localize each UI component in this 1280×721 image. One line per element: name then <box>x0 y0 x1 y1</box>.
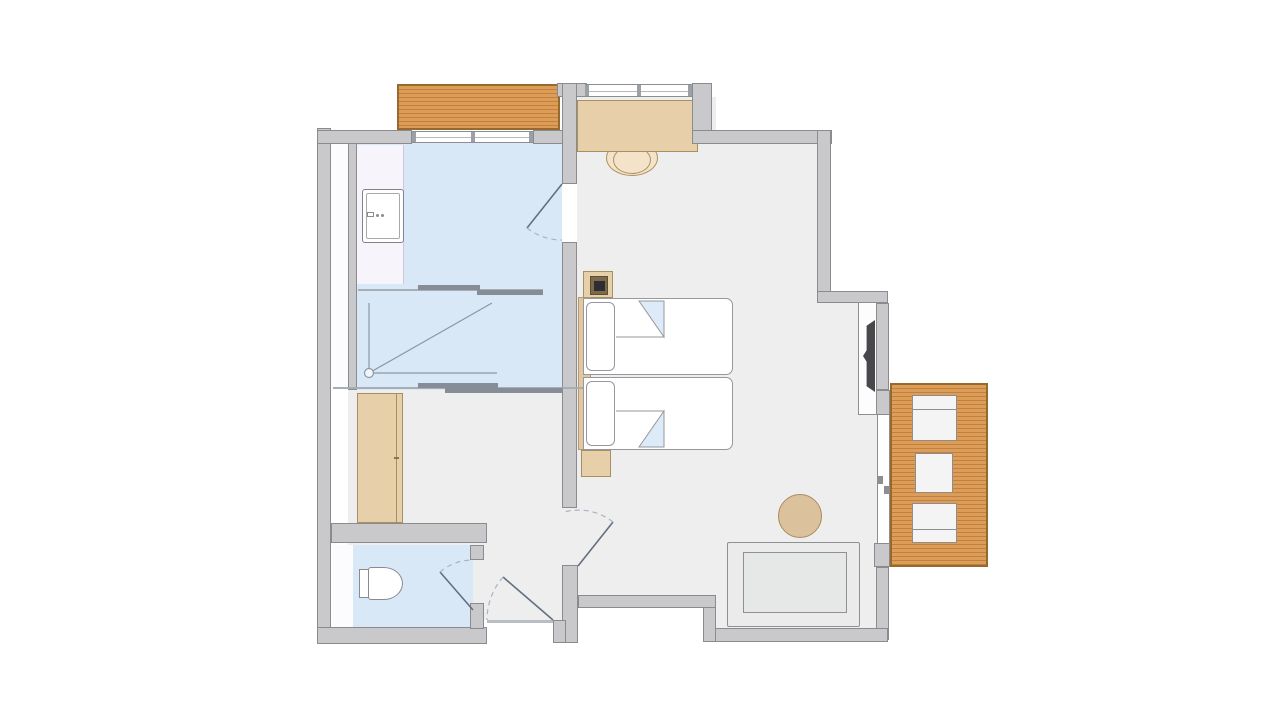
wc-floor <box>333 545 473 627</box>
entry-threshold <box>487 620 553 623</box>
wall <box>331 523 487 543</box>
sliding-partition-upper-panel <box>477 290 543 295</box>
wall <box>876 303 889 390</box>
chair-backrest-line <box>913 409 956 410</box>
juliet-deck <box>397 84 560 130</box>
wall <box>703 628 888 642</box>
wall-cavity <box>333 545 353 627</box>
wall-cavity <box>331 143 348 390</box>
bedroom-window <box>585 84 692 97</box>
faucet-icon <box>381 214 384 217</box>
sliding-partition-upper-panel <box>418 285 480 290</box>
wall <box>317 627 487 644</box>
slider-handle <box>884 486 889 494</box>
sofa-bench <box>727 542 860 627</box>
faucet-icon <box>367 212 374 217</box>
wall-partition <box>348 143 357 390</box>
wall <box>874 543 890 567</box>
pillow-1 <box>586 302 615 371</box>
window-mullion <box>471 132 475 142</box>
round-side-table <box>778 494 822 538</box>
floor-plan <box>0 0 1280 721</box>
wall <box>317 128 331 644</box>
wall <box>817 130 831 303</box>
wall <box>562 242 577 508</box>
wall <box>553 620 566 643</box>
nightstand-bottom <box>581 450 611 477</box>
window-mullion <box>585 85 589 96</box>
chair-backrest-line <box>913 529 956 530</box>
wall <box>470 545 484 560</box>
bedside-lamp <box>590 276 608 295</box>
lamp-shade <box>594 281 605 291</box>
window-mullion <box>637 85 641 96</box>
window-mullion <box>688 85 692 96</box>
window-mullion <box>412 132 416 142</box>
sliding-partition-lower-panel <box>445 388 563 393</box>
balcony-chair-1 <box>912 395 957 441</box>
wall <box>817 291 888 303</box>
wall <box>578 595 716 608</box>
sofa-cushion <box>743 552 847 613</box>
wall <box>317 130 412 144</box>
wall <box>692 130 832 144</box>
wardrobe <box>357 393 403 523</box>
window-mullion <box>529 132 533 142</box>
pillow-2 <box>586 381 615 446</box>
sink-vanity <box>362 189 404 243</box>
wall <box>470 603 484 629</box>
bathroom-window <box>412 131 533 143</box>
desk <box>577 100 698 152</box>
wall <box>562 83 577 184</box>
balcony-table <box>915 453 953 493</box>
faucet-icon <box>376 214 379 217</box>
slider-handle <box>878 476 883 484</box>
balcony-chair-2 <box>912 503 957 543</box>
balcony-sliding-door <box>877 415 890 543</box>
wardrobe-handle <box>394 457 399 459</box>
